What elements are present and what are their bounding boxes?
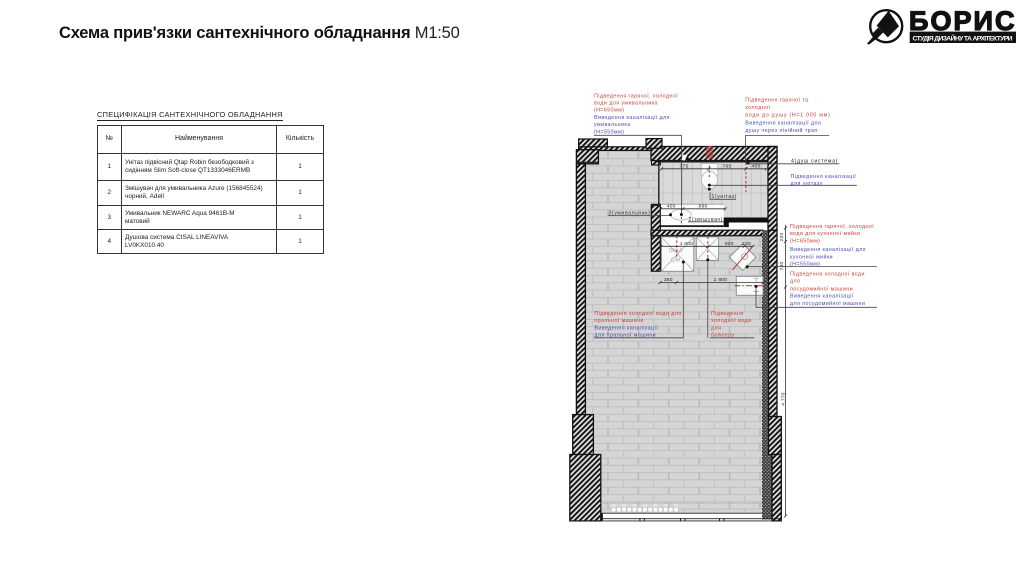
- svg-text:води для кухонної мийки: води для кухонної мийки: [790, 230, 860, 237]
- svg-text:Виведення каналізації для: Виведення каналізації для: [745, 120, 821, 126]
- svg-text:4(душ система): 4(душ система): [791, 158, 838, 164]
- svg-text:ПРАЛ: ПРАЛ: [669, 249, 682, 255]
- svg-text:душу через лінійний трап: душу через лінійний трап: [745, 127, 817, 134]
- svg-text:Виведення каналізації для: Виведення каналізації для: [790, 247, 866, 253]
- svg-text:для посудомийної машини: для посудомийної машини: [790, 300, 865, 307]
- svg-text:230: 230: [742, 241, 751, 247]
- svg-text:765: 765: [723, 163, 732, 169]
- svg-text:(Н=650мм): (Н=650мм): [790, 238, 820, 244]
- svg-text:(Н=650мм): (Н=650мм): [594, 108, 624, 114]
- svg-text:пральної машини: пральної машини: [594, 318, 643, 324]
- svg-text:Підведення холодної води для: Підведення холодної води для: [594, 311, 681, 317]
- svg-text:4 770: 4 770: [781, 392, 787, 406]
- svg-text:умивальника: умивальника: [594, 122, 631, 128]
- svg-text:775: 775: [680, 163, 689, 169]
- svg-text:(Н=550мм): (Н=550мм): [594, 129, 624, 135]
- svg-text:400: 400: [667, 203, 676, 209]
- svg-text:Підведення: Підведення: [711, 311, 744, 317]
- svg-text:посудомийної машини: посудомийної машини: [790, 285, 853, 292]
- svg-text:2(змішувач): 2(змішувач): [689, 217, 723, 223]
- svg-text:400: 400: [752, 163, 761, 169]
- svg-text:холодної води: холодної води: [711, 318, 751, 324]
- svg-text:Підведення каналізації: Підведення каналізації: [791, 174, 857, 180]
- svg-text:С/М: С/М: [671, 258, 680, 264]
- svg-text:води для умивальника: води для умивальника: [594, 101, 658, 107]
- svg-text:Підведення холодної води: Підведення холодної води: [790, 271, 865, 277]
- svg-text:для пральної машини: для пральної машини: [594, 333, 656, 339]
- svg-text:920: 920: [725, 241, 734, 247]
- svg-text:1 000: 1 000: [680, 241, 694, 247]
- svg-text:для: для: [790, 279, 800, 285]
- svg-text:Підведення гарячої, холодної: Підведення гарячої, холодної: [790, 224, 874, 230]
- svg-text:3(умивальник): 3(умивальник): [609, 210, 651, 216]
- svg-text:Підведення гарячої, холодної: Підведення гарячої, холодної: [594, 93, 678, 99]
- svg-text:220: 220: [779, 233, 785, 242]
- svg-text:740: 740: [779, 262, 785, 271]
- svg-text:для унітазу: для унітазу: [791, 181, 823, 187]
- svg-text:Підведення гарячої та: Підведення гарячої та: [745, 98, 808, 104]
- svg-text:кухонної мийки: кухонної мийки: [790, 254, 833, 261]
- svg-text:1 800: 1 800: [714, 277, 728, 283]
- svg-text:холодної: холодної: [745, 105, 770, 111]
- svg-text:1(унітаз): 1(унітаз): [712, 194, 737, 200]
- svg-text:для: для: [711, 325, 721, 331]
- svg-text:бойлеру: бойлеру: [711, 332, 734, 339]
- svg-text:(Н=550мм): (Н=550мм): [790, 262, 820, 268]
- svg-text:Виведення каналізації: Виведення каналізації: [790, 294, 854, 300]
- svg-text:890: 890: [699, 203, 708, 209]
- svg-text:води до душу (Н=1 000 мм): води до душу (Н=1 000 мм): [745, 113, 830, 119]
- svg-text:Виведення каналізації: Виведення каналізації: [594, 325, 658, 331]
- svg-text:Виведення каналізації для: Виведення каналізації для: [594, 115, 670, 121]
- svg-text:360: 360: [664, 277, 673, 283]
